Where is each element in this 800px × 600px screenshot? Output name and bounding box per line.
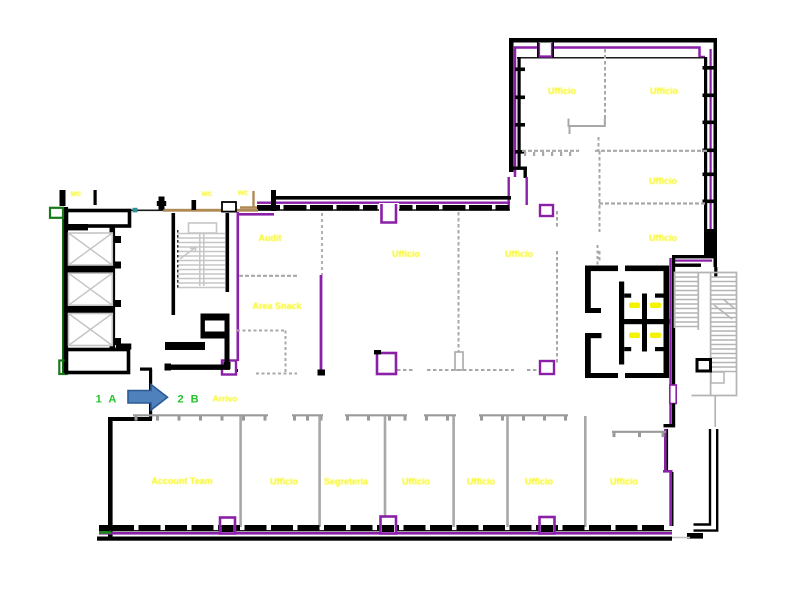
svg-text:1 A: 1 A — [96, 394, 119, 406]
svg-text:wc: wc — [237, 188, 249, 197]
svg-text:Ufficio: Ufficio — [650, 86, 679, 96]
svg-text:Ufficio: Ufficio — [649, 233, 678, 243]
svg-text:Ufficio: Ufficio — [649, 176, 678, 186]
svg-text:Ufficio: Ufficio — [548, 86, 577, 96]
svg-text:Audit: Audit — [259, 233, 282, 243]
svg-text:Area Snack: Area Snack — [252, 301, 302, 311]
svg-text:Ufficio: Ufficio — [392, 249, 421, 259]
svg-text:2 B: 2 B — [177, 394, 200, 406]
svg-text:Ufficio: Ufficio — [467, 477, 496, 487]
svg-text:Account Team: Account Team — [151, 476, 212, 486]
svg-text:Segreteria: Segreteria — [324, 477, 369, 487]
svg-text:Ufficio: Ufficio — [610, 477, 639, 487]
svg-text:wc: wc — [201, 189, 213, 198]
svg-text:wc: wc — [70, 189, 82, 198]
svg-text:Ufficio: Ufficio — [525, 477, 554, 487]
svg-text:Arrivo: Arrivo — [212, 394, 237, 404]
svg-text:Ufficio: Ufficio — [505, 249, 534, 259]
svg-text:Ufficio: Ufficio — [270, 477, 299, 487]
svg-text:Ufficio: Ufficio — [402, 477, 431, 487]
